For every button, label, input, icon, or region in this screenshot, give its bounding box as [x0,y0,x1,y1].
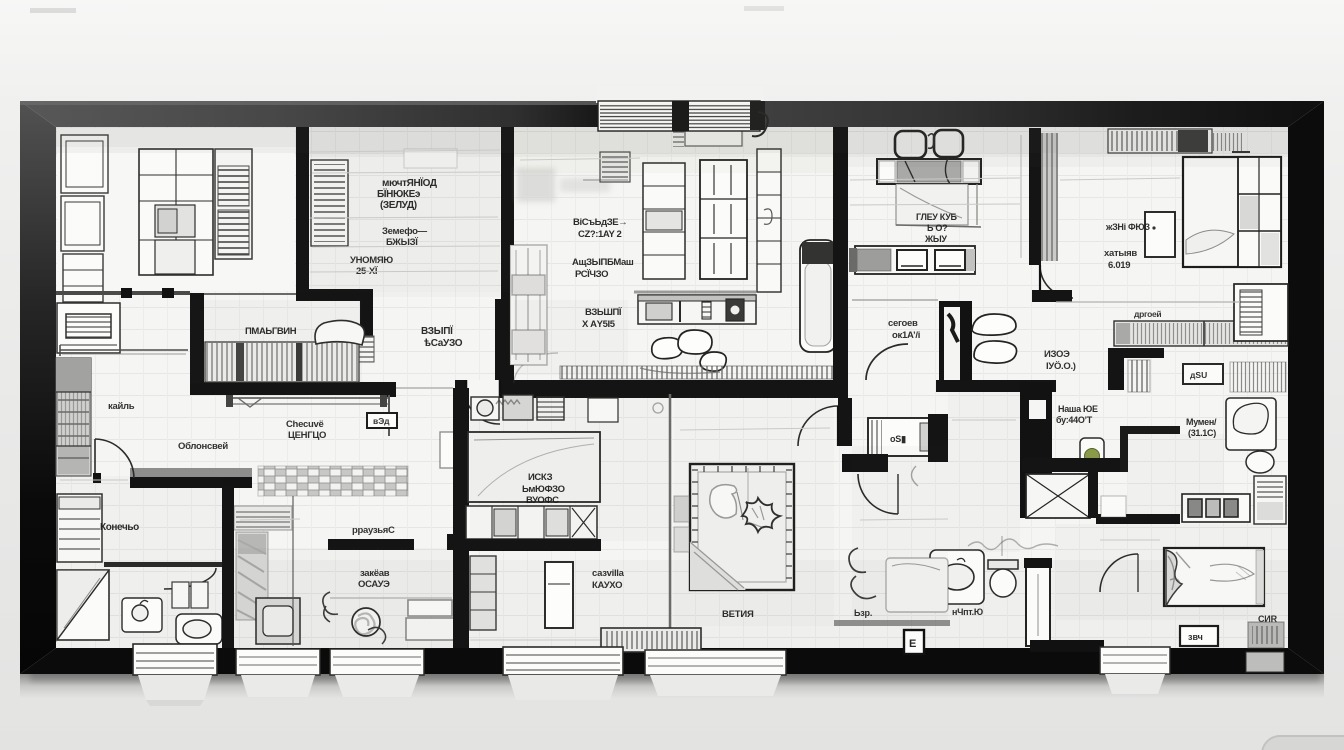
svg-text:ЖЫУ: ЖЫУ [924,234,947,244]
svg-text:РСЇЧЗО: РСЇЧЗО [575,269,608,280]
svg-text:6.019: 6.019 [1108,260,1130,271]
svg-text:АщЗЫПБМаш: АщЗЫПБМаш [572,257,634,268]
svg-text:сазvilla: сазvilla [592,568,625,579]
svg-text:BiСъЬдЗЕ→: BiСъЬдЗЕ→ [573,217,627,228]
svg-text:ѣСаУЗО: ѣСаУЗО [424,338,463,349]
svg-text:Наша ЮЕ: Наша ЮЕ [1058,404,1098,414]
svg-text:ppаузьяС: ppаузьяС [352,525,395,536]
svg-text:дргоей: дргоей [1134,309,1161,319]
svg-text:Мумен/: Мумен/ [1186,417,1217,427]
svg-text:Облонсвей: Облонсвей [178,441,228,452]
svg-text:ИЗОЭ: ИЗОЭ [1044,349,1070,360]
svg-text:дSU: дSU [1190,370,1207,380]
svg-text:кайль: кайль [108,401,135,412]
svg-text:ок1А’/i: ок1А’/i [892,330,920,341]
svg-text:IУӦ.О.): IУӦ.О.) [1046,361,1076,372]
svg-text:КАУХО: КАУХО [592,580,622,591]
svg-text:хатыяв: хатыяв [1104,248,1137,259]
svg-text:оS▮: оS▮ [890,434,906,444]
svg-text:вЭд: вЭд [373,416,390,426]
svg-text:нЧпт.Ю: нЧпт.Ю [952,607,983,617]
svg-text:Е: Е [909,638,916,650]
svg-text:ЦЕНГЦО: ЦЕНГЦО [288,430,326,441]
svg-text:сегоев: сегоев [888,318,918,329]
svg-text:ГЛЕУ КУБ: ГЛЕУ КУБ [916,212,958,222]
svg-text:Checuvё: Checuvё [286,419,324,430]
svg-text:жЗНi ФЮЗ: жЗНi ФЮЗ [1105,222,1150,232]
svg-text:звч: звч [1188,632,1203,642]
svg-text:бу:44О’Т: бу:44О’Т [1056,415,1093,425]
svg-text:ВЗЫПЇ: ВЗЫПЇ [421,324,453,337]
svg-text:CZ?:1AY 2: CZ?:1AY 2 [578,229,622,240]
svg-text:Ь О?: Ь О? [927,223,947,233]
